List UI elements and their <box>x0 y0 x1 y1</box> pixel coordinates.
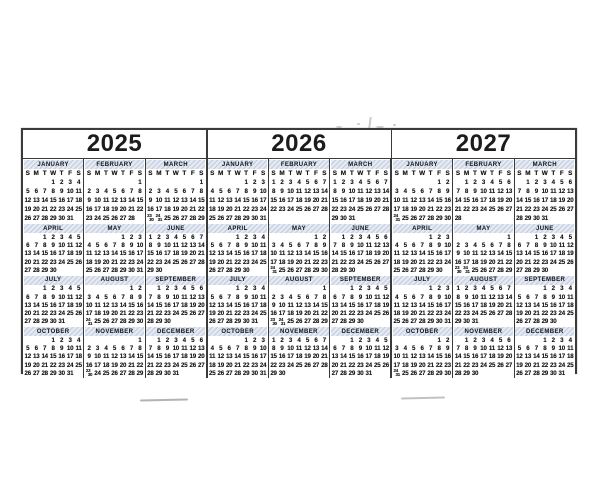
date-cell: 11 <box>93 301 101 309</box>
date-cell: 27 <box>110 318 118 326</box>
date-cell: 26 <box>303 361 311 369</box>
date-cell: 11 <box>373 293 381 301</box>
date-cell: 26 <box>189 361 197 369</box>
date-cell: 24 <box>541 205 549 214</box>
weekday-letter: T <box>532 170 540 177</box>
date-cell: 18 <box>74 353 82 361</box>
date-cell: 13 <box>216 250 224 258</box>
date-cell: 24 <box>443 310 451 318</box>
month-name: NOVEMBER <box>85 327 144 336</box>
date-cell: 15 <box>233 301 241 309</box>
date-cell: 13 <box>409 250 417 258</box>
empty-cell <box>295 369 303 377</box>
date-cell: 23 <box>348 258 356 266</box>
date-cell: 21 <box>532 310 540 318</box>
date-cell: 15 <box>541 301 549 309</box>
date-cell: 10 <box>66 187 74 196</box>
date-cell: 22 <box>462 361 470 369</box>
date-cell: 13 <box>505 187 513 196</box>
empty-cell <box>286 285 294 293</box>
month-cell: NOVEMBER12345678910111213141516171819202… <box>84 326 144 378</box>
date-cell: 29 <box>269 369 277 377</box>
date-cell: 30 <box>541 266 549 274</box>
date-cell: 25 <box>93 318 101 326</box>
month-dates: 1234567891011121314151617181920212223242… <box>24 336 83 378</box>
date-cell: 5 <box>515 344 523 352</box>
date-cell: 11 <box>373 344 381 352</box>
stacked-date-bottom: 31 <box>395 373 399 377</box>
date-cell: 25 <box>66 310 74 318</box>
date-cell: 22 <box>348 310 356 318</box>
date-cell: 27 <box>24 318 32 326</box>
empty-cell <box>566 266 574 274</box>
date-cell: 13 <box>505 344 513 352</box>
empty-cell <box>225 233 233 241</box>
date-cell: 20 <box>32 361 40 369</box>
empty-cell <box>216 336 224 344</box>
date-cell: 18 <box>85 258 93 266</box>
date-cell: 3 <box>471 285 479 293</box>
date-cell: 12 <box>515 353 523 361</box>
weekday-header: SMTWTFS <box>208 169 267 178</box>
date-cell: 3 <box>172 336 180 344</box>
weekday-letter: M <box>524 170 532 177</box>
empty-cell <box>172 178 180 187</box>
weekday-letter: S <box>259 170 267 177</box>
date-cell: 17 <box>250 250 258 258</box>
date-cell: 23 <box>278 205 286 214</box>
date-cell: 14 <box>515 196 523 205</box>
date-cell: 17 <box>479 196 487 205</box>
month-cell: NOVEMBER12345678910111213141516171819202… <box>453 326 513 378</box>
empty-cell <box>172 318 180 326</box>
date-cell: 18 <box>102 361 110 369</box>
date-cell: 20 <box>110 310 118 318</box>
empty-cell <box>24 336 32 344</box>
weekday-letter: S <box>443 170 451 177</box>
date-cell: 4 <box>74 178 82 187</box>
date-cell: 9 <box>443 344 451 352</box>
date-cell: 26 <box>382 361 390 369</box>
date-cell: 14 <box>32 301 40 309</box>
empty-cell <box>119 336 127 344</box>
weekday-letter: M <box>401 170 409 177</box>
empty-cell <box>339 285 347 293</box>
date-cell: 21 <box>320 353 328 361</box>
date-cell: 16 <box>49 301 57 309</box>
date-cell: 4 <box>479 285 487 293</box>
date-cell: 27 <box>331 369 339 377</box>
date-cell: 21 <box>233 205 241 214</box>
date-cell: 1 <box>331 178 339 187</box>
date-cell: 29 <box>49 369 57 377</box>
date-cell: 16 <box>356 353 364 361</box>
weekday-letter: F <box>312 170 320 177</box>
date-cell: 18 <box>356 196 364 205</box>
date-cell: 17 <box>558 353 566 361</box>
date-cell: 14 <box>225 301 233 309</box>
date-cell: 13 <box>312 187 320 196</box>
date-cell: 9 <box>163 344 171 352</box>
date-cell: 19 <box>373 250 381 258</box>
weekday-letter: W <box>172 170 180 177</box>
date-cell: 18 <box>278 258 286 266</box>
weekday-letter: F <box>435 170 443 177</box>
date-cell: 20 <box>189 250 197 258</box>
empty-cell <box>393 178 401 187</box>
date-cell: 31 <box>66 369 74 377</box>
date-cell: 24 <box>66 205 74 214</box>
date-cell: 30 <box>163 318 171 326</box>
empty-cell <box>32 178 40 187</box>
date-cell: 15 <box>197 196 205 205</box>
empty-cell <box>515 285 523 293</box>
date-cell: 27 <box>524 318 532 326</box>
date-cell: 2 <box>57 336 65 344</box>
date-cell: 30 <box>435 318 443 326</box>
weekday-letter: S <box>454 170 462 177</box>
weekday-letter: M <box>32 170 40 177</box>
date-cell: 23 <box>250 205 258 214</box>
date-cell: 23 <box>242 258 250 266</box>
date-cell: 5 <box>382 285 390 293</box>
date-cell: 13 <box>102 250 110 258</box>
weekday-letter: T <box>242 170 250 177</box>
date-cell: 8 <box>524 187 532 196</box>
month-cell: MARCHSMTWTFS1234567891011121314151617181… <box>146 159 206 223</box>
month-cell: OCTOBER123456789101112131415161718192021… <box>23 326 83 378</box>
empty-cell <box>57 266 65 274</box>
month-cell: DECEMBER12345678910111213141516171819202… <box>330 326 390 378</box>
date-cell: 13 <box>515 250 523 258</box>
weekday-letter: W <box>110 170 118 177</box>
date-cell: 14 <box>233 353 241 361</box>
empty-cell <box>24 178 32 187</box>
date-cell: 14 <box>146 353 154 361</box>
empty-cell <box>418 233 426 241</box>
date-cell: 21 <box>146 310 154 318</box>
empty-cell <box>382 318 390 326</box>
date-cell: 1 <box>136 336 144 344</box>
empty-cell <box>180 318 188 326</box>
date-cell: 8 <box>541 293 549 301</box>
date-cell: 12 <box>74 293 82 301</box>
date-cell: 12 <box>365 187 373 196</box>
date-cell: 16 <box>443 353 451 361</box>
date-cell: 5 <box>216 187 224 196</box>
date-cell: 22 <box>136 205 144 214</box>
date-cell: 8 <box>348 293 356 301</box>
date-cell: 22 <box>312 258 320 266</box>
date-cell: 12 <box>102 301 110 309</box>
date-cell: 7 <box>127 187 135 196</box>
month-cell: JANUARYSMTWTFS12345678910111213141516171… <box>23 159 83 223</box>
date-cell: 9 <box>242 241 250 249</box>
empty-cell <box>382 266 390 274</box>
date-cell: 11 <box>549 187 557 196</box>
date-cell: 5 <box>102 293 110 301</box>
date-cell: 22 <box>331 205 339 214</box>
date-cell: 28 <box>524 266 532 274</box>
weekday-letter: T <box>57 170 65 177</box>
date-cell: 19 <box>515 361 523 369</box>
date-cell: 3 <box>462 241 470 249</box>
weekday-letter: S <box>320 170 328 177</box>
weekday-header: SMTWTFS <box>24 169 83 178</box>
month-name: JULY <box>393 276 452 285</box>
weekday-letter: M <box>278 170 286 177</box>
date-cell: 21 <box>146 361 154 369</box>
date-cell: 20 <box>295 258 303 266</box>
date-cell: 6 <box>505 336 513 344</box>
date-cell: 20 <box>24 258 32 266</box>
date-cell: 29 <box>426 318 434 326</box>
date-cell: 22 <box>136 361 144 369</box>
empty-cell <box>32 233 40 241</box>
date-cell: 14 <box>40 196 48 205</box>
date-cell: 13 <box>216 301 224 309</box>
date-cell: 16 <box>549 301 557 309</box>
date-cell: 4 <box>172 233 180 241</box>
weekday-letter: T <box>426 170 434 177</box>
date-cell: 18 <box>180 301 188 309</box>
date-cell: 24 <box>250 310 258 318</box>
empty-cell <box>365 318 373 326</box>
date-cell: 18 <box>102 205 110 214</box>
empty-cell <box>454 178 462 187</box>
date-cell: 7 <box>32 241 40 249</box>
date-cell: 19 <box>382 301 390 309</box>
date-cell: 3 <box>479 178 487 187</box>
empty-cell <box>189 178 197 187</box>
date-cell: 30 <box>348 266 356 274</box>
month-dates: 1234567891011121314151617181920212223242… <box>85 178 144 224</box>
date-cell: 21 <box>312 310 320 318</box>
date-cell: 11 <box>295 344 303 352</box>
date-cell: 30 <box>471 369 479 377</box>
empty-cell <box>74 266 82 274</box>
date-cell: 11 <box>365 241 373 249</box>
empty-cell <box>303 233 311 241</box>
date-cell: 28 <box>32 266 40 274</box>
date-cell: 4 <box>208 344 216 352</box>
date-cell: 3 <box>541 178 549 187</box>
date-cell: 2 <box>435 285 443 293</box>
date-cell: 8 <box>331 187 339 196</box>
date-cell: 7 <box>119 293 127 301</box>
date-cell: 20 <box>197 301 205 309</box>
date-cell: 30 <box>462 318 470 326</box>
date-cell: 17 <box>259 353 267 361</box>
date-cell: 9 <box>471 187 479 196</box>
date-cell: 8 <box>136 344 144 352</box>
month-name: APRIL <box>208 224 267 233</box>
empty-cell <box>295 285 303 293</box>
date-cell: 7 <box>303 241 311 249</box>
date-cell: 30 <box>532 214 540 223</box>
month-dates: 1234567891011121314151617181920212223302… <box>269 285 328 327</box>
date-cell: 7 <box>426 187 434 196</box>
date-cell: 13 <box>524 353 532 361</box>
date-cell: 2 <box>163 285 171 293</box>
date-cell: 20 <box>225 361 233 369</box>
date-cell: 13 <box>189 241 197 249</box>
month-name: FEBRUARY <box>269 160 328 169</box>
date-cell: 12 <box>74 241 82 249</box>
date-cell: 1 <box>348 336 356 344</box>
date-cell: 29 <box>40 318 48 326</box>
date-cell: 8 <box>136 187 144 196</box>
weekday-letter: T <box>102 170 110 177</box>
empty-cell <box>286 369 294 377</box>
date-cell: 24 <box>172 361 180 369</box>
date-cell: 15 <box>242 196 250 205</box>
date-cell: 23 <box>435 310 443 318</box>
date-cell: 21 <box>454 205 462 214</box>
empty-cell <box>208 336 216 344</box>
date-cell: 19 <box>401 310 409 318</box>
date-cell: 25 <box>180 310 188 318</box>
empty-cell <box>233 178 241 187</box>
date-cell: 1 <box>505 233 513 241</box>
date-cell: 11 <box>172 241 180 249</box>
date-cell: 31 <box>558 369 566 377</box>
date-cell: 10 <box>269 250 277 258</box>
date-cell: 29 <box>348 369 356 377</box>
date-cell: 12 <box>558 187 566 196</box>
date-cell: 17 <box>163 250 171 258</box>
month-dates: 1234567891011121314151617181920212223243… <box>269 233 328 275</box>
date-cell: 10 <box>365 344 373 352</box>
date-cell: 10 <box>479 187 487 196</box>
empty-cell <box>393 233 401 241</box>
date-cell: 28 <box>339 318 347 326</box>
date-cell: 12 <box>515 301 523 309</box>
date-cell: 1 <box>155 285 163 293</box>
date-cell: 29 <box>331 214 339 223</box>
date-cell: 24 <box>93 369 101 377</box>
date-cell: 25 <box>393 266 401 274</box>
month-name: FEBRUARY <box>454 160 513 169</box>
date-cell: 6 <box>180 187 188 196</box>
date-cell: 1 <box>233 233 241 241</box>
empty-cell <box>250 266 258 274</box>
date-cell: 7 <box>496 241 504 249</box>
date-cell: 30 <box>443 369 451 377</box>
date-cell: 18 <box>393 310 401 318</box>
date-cell: 22 <box>49 205 57 214</box>
date-cell: 26 <box>401 266 409 274</box>
date-cell: 17 <box>348 196 356 205</box>
date-cell: 23 <box>136 310 144 318</box>
empty-cell <box>426 336 434 344</box>
date-cell: 7 <box>454 344 462 352</box>
date-cell: 8 <box>339 241 347 249</box>
date-cell: 2 <box>250 336 258 344</box>
date-cell: 29 <box>136 369 144 377</box>
date-cell: 23 <box>339 205 347 214</box>
date-cell: 11 <box>558 241 566 249</box>
date-cell: 7 <box>40 344 48 352</box>
date-cell: 12 <box>208 250 216 258</box>
date-cell: 5 <box>409 187 417 196</box>
stacked-date-bottom: 31 <box>158 218 162 222</box>
date-cell: 26 <box>365 205 373 214</box>
date-cell: 28 <box>127 369 135 377</box>
date-cell: 15 <box>49 196 57 205</box>
date-cell: 20 <box>373 196 381 205</box>
date-cell: 29 <box>197 214 205 223</box>
date-cell: 10 <box>549 241 557 249</box>
empty-cell <box>163 266 171 274</box>
date-cell: 25 <box>356 205 364 214</box>
weekday-letter: T <box>40 170 48 177</box>
date-cell: 9 <box>541 241 549 249</box>
month-dates: 1234567891011121314151617181920212223242… <box>208 178 267 224</box>
date-cell: 15 <box>331 196 339 205</box>
date-cell: 14 <box>312 301 320 309</box>
date-cell: 1 <box>242 178 250 187</box>
empty-cell <box>136 214 144 223</box>
date-cell: 30 <box>549 369 557 377</box>
empty-cell <box>401 233 409 241</box>
date-cell: 15 <box>155 353 163 361</box>
date-cell: 26 <box>382 310 390 318</box>
date-cell: 23 <box>57 361 65 369</box>
empty-cell <box>85 178 93 187</box>
date-cell: 9 <box>49 293 57 301</box>
empty-cell <box>549 266 557 274</box>
date-cell: 22 <box>348 361 356 369</box>
date-cell: 2 <box>471 336 479 344</box>
date-cell: 19 <box>74 301 82 309</box>
date-cell: 7 <box>382 178 390 187</box>
empty-cell <box>102 233 110 241</box>
month-name: DECEMBER <box>146 327 205 336</box>
date-cell: 12 <box>216 353 224 361</box>
date-cell: 26 <box>110 214 118 223</box>
month-name: MARCH <box>515 160 574 169</box>
date-cell: 22 <box>127 310 135 318</box>
month-cell: APRIL12345678910111213141516171819202122… <box>392 223 452 275</box>
date-cell: 21 <box>189 205 197 214</box>
date-cell: 15 <box>320 301 328 309</box>
date-cell: 15 <box>40 250 48 258</box>
empty-cell <box>426 178 434 187</box>
date-cell: 28 <box>454 369 462 377</box>
empty-cell <box>208 285 216 293</box>
date-cell: 6 <box>225 344 233 352</box>
empty-cell <box>24 233 32 241</box>
date-cell: 17 <box>57 301 65 309</box>
date-cell: 15 <box>426 250 434 258</box>
date-cell: 20 <box>180 205 188 214</box>
date-cell: 4 <box>180 285 188 293</box>
date-cell: 25 <box>295 205 303 214</box>
date-cell: 12 <box>566 241 574 249</box>
date-cell: 14 <box>110 250 118 258</box>
date-cell: 26 <box>24 214 32 223</box>
weekday-letter: T <box>303 170 311 177</box>
date-cell: 9 <box>136 293 144 301</box>
empty-cell <box>312 285 320 293</box>
date-cell: 28 <box>119 318 127 326</box>
month-dates: 1234567891011121314151617181920212223242… <box>24 233 83 275</box>
date-cell: 9 <box>278 344 286 352</box>
date-cell: 3 <box>286 336 294 344</box>
date-cell: 30 <box>339 214 347 223</box>
date-cell: 3 <box>348 178 356 187</box>
